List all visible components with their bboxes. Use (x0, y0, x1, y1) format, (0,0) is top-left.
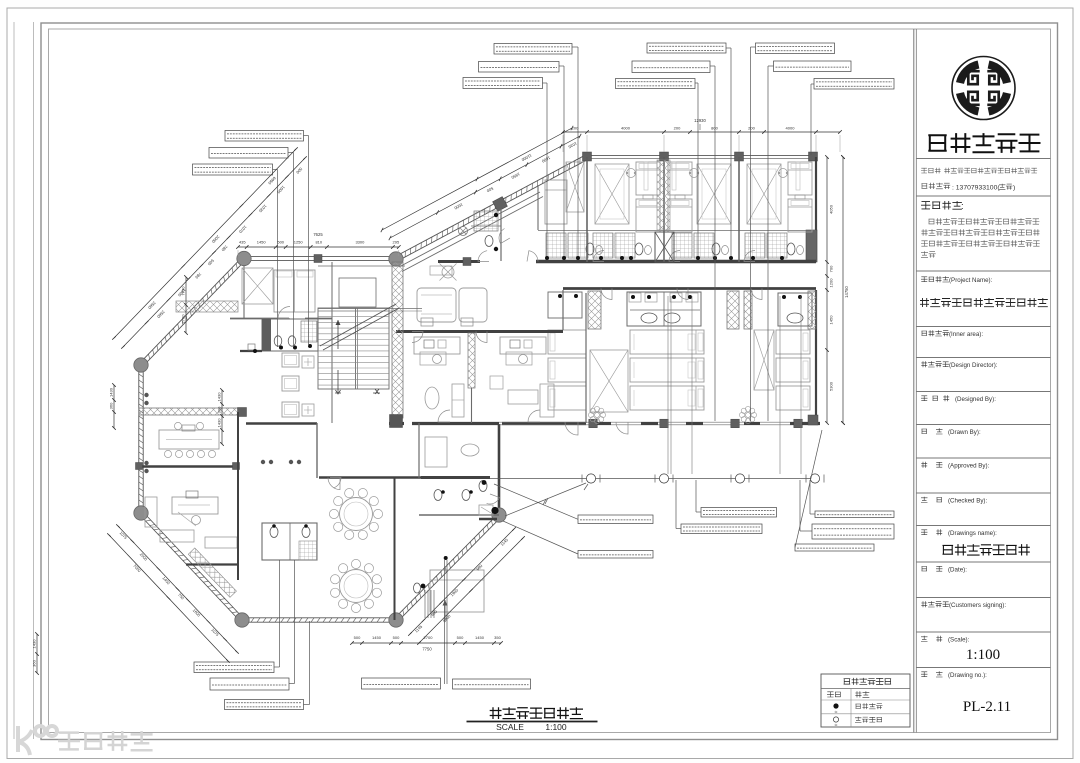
svg-text:4050: 4050 (829, 204, 834, 214)
svg-text:4000: 4000 (786, 126, 796, 131)
svg-text:(Drawn By):: (Drawn By): (948, 429, 981, 436)
svg-text:(Scale):: (Scale): (948, 637, 970, 644)
svg-text:2700: 2700 (424, 635, 434, 640)
svg-text:500: 500 (393, 635, 400, 640)
svg-text:≈: ≈ (835, 710, 838, 716)
svg-text:200: 200 (748, 126, 755, 131)
svg-text:3300: 3300 (355, 240, 365, 245)
svg-text:295: 295 (393, 240, 400, 245)
svg-text:7730: 7730 (181, 286, 186, 296)
svg-text:7625: 7625 (313, 232, 323, 237)
svg-text:(Design Director):: (Design Director): (949, 362, 998, 369)
svg-text:(Customers signing):: (Customers signing): (949, 602, 1006, 609)
svg-text:: 13707933100(: : 13707933100( (952, 185, 1000, 192)
svg-text:700: 700 (829, 265, 834, 272)
svg-text:360: 360 (32, 659, 37, 666)
svg-text:PL-2.11: PL-2.11 (963, 699, 1011, 715)
svg-text:500: 500 (277, 240, 284, 245)
svg-text:1:100: 1:100 (545, 722, 567, 732)
svg-text:(Inner area):: (Inner area): (949, 331, 983, 338)
svg-text:1430: 1430 (217, 392, 222, 402)
svg-text:(Checked By):: (Checked By): (948, 498, 987, 505)
svg-text:1450: 1450 (475, 635, 485, 640)
svg-text:(Approved By):: (Approved By): (948, 463, 990, 470)
svg-text:1:100: 1:100 (966, 647, 1000, 663)
svg-text:): ) (1013, 185, 1015, 192)
svg-text:1430: 1430 (217, 418, 222, 428)
svg-text::: : (961, 201, 964, 212)
svg-text:4000: 4000 (621, 126, 631, 131)
svg-text:5300: 5300 (829, 381, 834, 391)
svg-text:1200: 1200 (829, 278, 834, 288)
svg-text:1430: 1430 (109, 387, 114, 397)
svg-text:200: 200 (674, 126, 681, 131)
svg-text:1450: 1450 (829, 315, 834, 325)
svg-text:1250: 1250 (294, 240, 304, 245)
svg-text:14750: 14750 (844, 286, 849, 298)
svg-text:1450: 1450 (257, 240, 267, 245)
svg-text:500: 500 (354, 635, 361, 640)
svg-text:800: 800 (711, 126, 718, 131)
svg-text:1450: 1450 (372, 635, 382, 640)
svg-text:≈: ≈ (835, 723, 838, 729)
svg-text:7750: 7750 (422, 647, 432, 652)
svg-text:435: 435 (239, 240, 246, 245)
svg-text:500: 500 (457, 635, 464, 640)
svg-text:(Date):: (Date): (948, 567, 967, 574)
svg-text:(Drawing no.):: (Drawing no.): (948, 672, 987, 679)
svg-text:SCALE: SCALE (496, 722, 524, 732)
svg-text:(Designed By):: (Designed By): (955, 396, 996, 403)
svg-text:(Drawings name):: (Drawings name): (948, 530, 997, 537)
svg-text:12930: 12930 (694, 118, 706, 123)
svg-text:300: 300 (217, 406, 222, 413)
svg-text:1430: 1430 (32, 639, 37, 649)
svg-text:350: 350 (494, 635, 501, 640)
svg-text:(Project Name):: (Project Name): (949, 277, 993, 284)
svg-text:360: 360 (109, 402, 114, 409)
svg-text:2700: 2700 (181, 314, 186, 324)
svg-text:810: 810 (315, 240, 322, 245)
